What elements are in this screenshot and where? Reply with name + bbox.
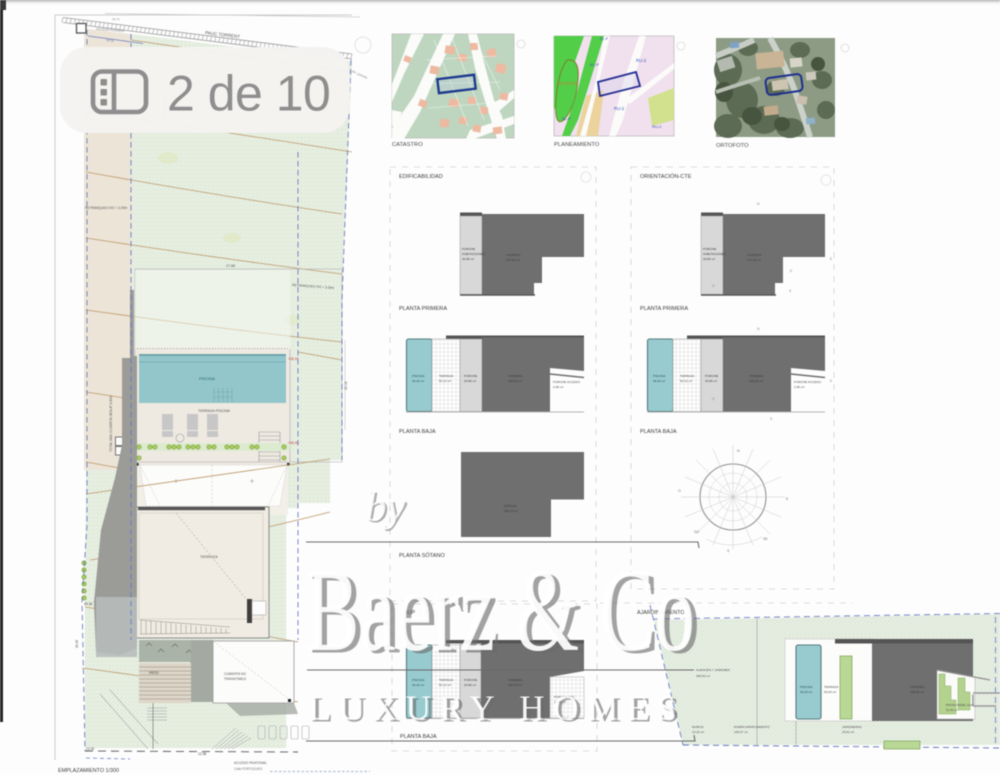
svg-text:O: O — [678, 489, 681, 493]
svg-text:PLANEAMIENTO: PLANEAMIENTO — [554, 142, 600, 148]
svg-text:RU-2: RU-2 — [636, 58, 647, 63]
svg-text:31.40 m²: 31.40 m² — [946, 708, 957, 712]
svg-text:TOTAL MAX CUSERTA SENUP 8.60m: TOTAL MAX CUSERTA SENUP 8.60m — [109, 395, 113, 452]
svg-text:PISTAS PADEL GUA: PISTAS PADEL GUA — [946, 703, 973, 707]
svg-text:+26.15: +26.15 — [288, 357, 299, 361]
svg-text:ACCESO PEATONAL: ACCESO PEATONAL — [234, 761, 267, 765]
svg-text:PORCHE: PORCHE — [462, 247, 475, 251]
svg-text:ZA PU-07: ZA PU-07 — [558, 81, 578, 86]
svg-text:VIVIENDA: VIVIENDA — [506, 253, 521, 257]
svg-text:46.20 m²: 46.20 m² — [800, 690, 812, 694]
svg-text:27.88: 27.88 — [226, 264, 235, 268]
svg-text:PLANTA BAJA: PLANTA BAJA — [400, 734, 437, 740]
svg-text:PISCINA: PISCINA — [653, 374, 666, 378]
svg-text:EL-P: EL-P — [590, 62, 599, 67]
svg-text:RAMPA APARCAMIENTO: RAMPA APARCAMIENTO — [734, 725, 770, 729]
svg-text:190.05 m²: 190.05 m² — [910, 690, 924, 694]
svg-text:50.12 m²: 50.12 m² — [439, 379, 451, 383]
svg-text:49.18: 49.18 — [84, 602, 92, 606]
svg-text:ORIENTACIÓN-CTE: ORIENTACIÓN-CTE — [640, 173, 692, 180]
svg-text:12.98: 12.98 — [198, 752, 206, 756]
svg-text:EL-P: EL-P — [562, 116, 571, 121]
svg-text:13.30: 13.30 — [86, 747, 94, 751]
svg-text:PISCINA: PISCINA — [412, 678, 425, 682]
svg-text:137.90 m²: 137.90 m² — [747, 258, 761, 262]
svg-text:SO: SO — [694, 530, 699, 534]
svg-text:50.04 m²: 50.04 m² — [824, 690, 836, 694]
svg-text:50.12 m²: 50.12 m² — [680, 379, 692, 383]
svg-text:by: by — [366, 485, 406, 531]
svg-text:15.15 m²: 15.15 m² — [692, 730, 704, 734]
svg-text:VIVIENDA: VIVIENDA — [749, 374, 764, 378]
svg-text:TERRAZA PISCINA: TERRAZA PISCINA — [198, 409, 231, 413]
svg-text:PORCHE: PORCHE — [464, 678, 477, 682]
svg-text:JARDINERAS: JARDINERAS — [842, 725, 862, 729]
svg-text:RETRANQUEO H/2 = 3.29m: RETRANQUEO H/2 = 3.29m — [85, 206, 127, 210]
svg-text:PORCHE ACCESO: PORCHE ACCESO — [794, 380, 822, 384]
svg-text:190.05 m²: 190.05 m² — [749, 379, 763, 383]
svg-text:EL-P: EL-P — [600, 37, 609, 41]
svg-text:CUBIERTA NO: CUBIERTA NO — [224, 672, 246, 676]
svg-text:30.85 m²: 30.85 m² — [705, 379, 717, 383]
svg-text:PLANTA BAJA: PLANTA BAJA — [640, 429, 677, 435]
svg-text:Baerz & Co: Baerz & Co — [305, 545, 695, 676]
svg-text:PORCHE: PORCHE — [703, 247, 716, 251]
svg-text:PISCINA: PISCINA — [199, 376, 215, 381]
svg-text:30.85 m²: 30.85 m² — [703, 257, 715, 261]
svg-text:45.08: 45.08 — [344, 381, 348, 390]
svg-text:+26.40: +26.40 — [288, 441, 299, 445]
svg-text:440.76 m²: 440.76 m² — [508, 683, 522, 687]
svg-text:CATASTRO: CATASTRO — [392, 142, 423, 148]
svg-text:50.12 m²: 50.12 m² — [439, 683, 451, 687]
svg-text:HABITACIONES: HABITACIONES — [703, 252, 726, 256]
svg-text:TERRAZA: TERRAZA — [680, 374, 695, 378]
svg-text:VIVIENDA: VIVIENDA — [747, 253, 762, 257]
svg-text:30.85 m²: 30.85 m² — [464, 379, 476, 383]
svg-text:VIVIENDA: VIVIENDA — [508, 678, 523, 682]
svg-text:PLANTA PRIMERA: PLANTA PRIMERA — [399, 306, 447, 312]
svg-text:SÓTANO: SÓTANO — [504, 503, 517, 508]
svg-text:2 de 10: 2 de 10 — [167, 66, 330, 122]
svg-text:TERRAZA: TERRAZA — [439, 374, 454, 378]
svg-text:46.20 m²: 46.20 m² — [412, 683, 424, 687]
svg-text:18.76: 18.76 — [112, 17, 120, 21]
svg-text:PORCHE: PORCHE — [705, 374, 718, 378]
svg-text:VIVIENDA: VIVIENDA — [508, 374, 523, 378]
svg-text:PORCHE: PORCHE — [464, 374, 477, 378]
svg-text:PLANTA PRIMERA: PLANTA PRIMERA — [640, 306, 688, 312]
svg-text:ORTOFOTO: ORTOFOTO — [716, 143, 749, 149]
svg-text:HABITACIONES: HABITACIONES — [462, 252, 485, 256]
svg-text:PORCHE ACCESO: PORCHE ACCESO — [553, 380, 581, 384]
svg-text:SE: SE — [763, 537, 768, 541]
svg-text:N: N — [737, 449, 740, 453]
svg-text:EMPLAZAMIENTO 1/300: EMPLAZAMIENTO 1/300 — [58, 768, 119, 774]
svg-text:2.80 m²: 2.80 m² — [794, 385, 805, 389]
svg-text:26.36: 26.36 — [75, 640, 79, 648]
svg-text:190.05 m²: 190.05 m² — [508, 379, 522, 383]
svg-text:30.86 m²: 30.86 m² — [464, 683, 476, 687]
svg-text:MUROS: MUROS — [692, 725, 704, 729]
svg-text:VIVIENDA: VIVIENDA — [910, 685, 925, 689]
svg-text:PISCINA: PISCINA — [800, 685, 813, 689]
svg-text:TRANSITABLE: TRANSITABLE — [224, 677, 247, 681]
svg-text:RU-2: RU-2 — [614, 106, 625, 111]
svg-text:O: O — [712, 284, 715, 288]
svg-text:RU-2: RU-2 — [652, 124, 662, 129]
svg-text:O: O — [712, 397, 715, 401]
svg-text:140.27 m²: 140.27 m² — [734, 730, 748, 734]
svg-text:30.85 m²: 30.85 m² — [462, 257, 474, 261]
svg-text:PLANTA BAJA: PLANTA BAJA — [399, 429, 436, 435]
svg-text:46.20 m²: 46.20 m² — [653, 379, 665, 383]
svg-text:TERRAZA: TERRAZA — [824, 685, 839, 689]
svg-text:46.20 m²: 46.20 m² — [412, 379, 424, 383]
svg-text:2.80 m²: 2.80 m² — [553, 385, 564, 389]
svg-text:Calle PORTUGUES: Calle PORTUGUES — [234, 767, 262, 771]
svg-text:TERRAZA: TERRAZA — [200, 555, 218, 559]
svg-text:185.10 m²: 185.10 m² — [504, 509, 518, 513]
svg-text:LUXURY HOMES: LUXURY HOMES — [308, 689, 688, 728]
svg-text:137.90 m²: 137.90 m² — [506, 258, 520, 262]
svg-text:25.81 m²: 25.81 m² — [842, 730, 854, 734]
svg-text:ALMACÉN Y JARDINES: ALMACÉN Y JARDINES — [696, 667, 730, 672]
svg-text:EDIFICABILIDAD: EDIFICABILIDAD — [399, 174, 443, 180]
svg-text:TERRAZA: TERRAZA — [439, 678, 454, 682]
svg-text:PISCINA: PISCINA — [412, 374, 425, 378]
svg-text:PATIO: PATIO — [149, 671, 159, 675]
